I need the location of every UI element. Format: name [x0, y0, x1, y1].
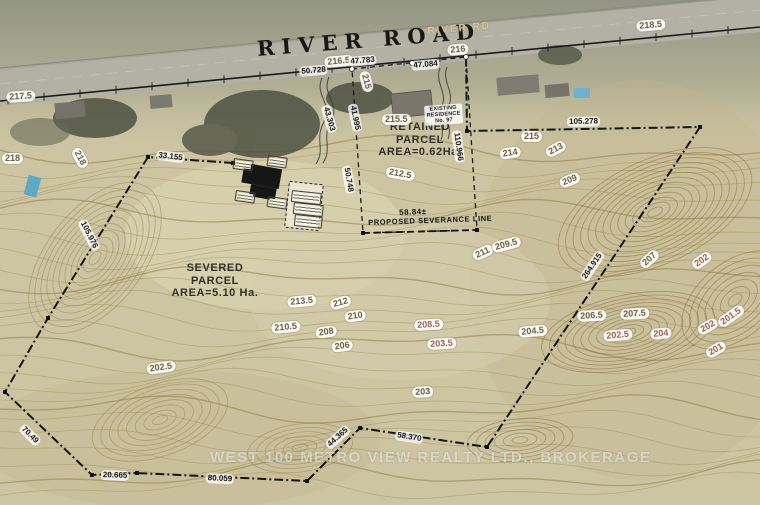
severed-line2: PARCEL	[150, 275, 280, 288]
dimension-label: 105.278	[567, 116, 600, 127]
dimension-label: 20.665	[101, 470, 130, 481]
watermark: WEST 100 METRO VIEW REALTY LTD., BROKERA…	[210, 449, 651, 466]
contour-label: 206.5	[577, 310, 606, 322]
severed-parcel-label: SEVERED PARCEL AREA=5.10 Ha.	[150, 262, 280, 300]
contour-label: 203.5	[427, 338, 456, 350]
contour-label: 208.5	[414, 319, 443, 331]
terrain-patch	[0, 370, 380, 505]
site-plan-canvas	[0, 0, 760, 505]
contour-label: 203	[412, 386, 434, 398]
severed-line3: AREA=5.10 Ha.	[150, 287, 280, 300]
pool	[574, 88, 590, 98]
retained-line2: PARCEL	[358, 134, 482, 147]
contour-label: 217.5	[6, 90, 35, 103]
dimension-label: 80.059	[205, 473, 234, 484]
existing-residence-label: EXISTING RESIDENCE No. 97	[424, 103, 463, 126]
contour-label: 215.5	[382, 114, 411, 125]
severed-line1: SEVERED	[150, 262, 280, 275]
survey-map: RIVER ROAD RIVER RD RETAINED PARCEL AREA…	[0, 0, 760, 505]
contour-label: 215	[521, 131, 542, 142]
contour-label: 207.5	[620, 308, 649, 320]
pool	[24, 175, 42, 198]
retained-line1: RETAINED	[358, 121, 482, 134]
contour-label: 218	[2, 153, 23, 164]
